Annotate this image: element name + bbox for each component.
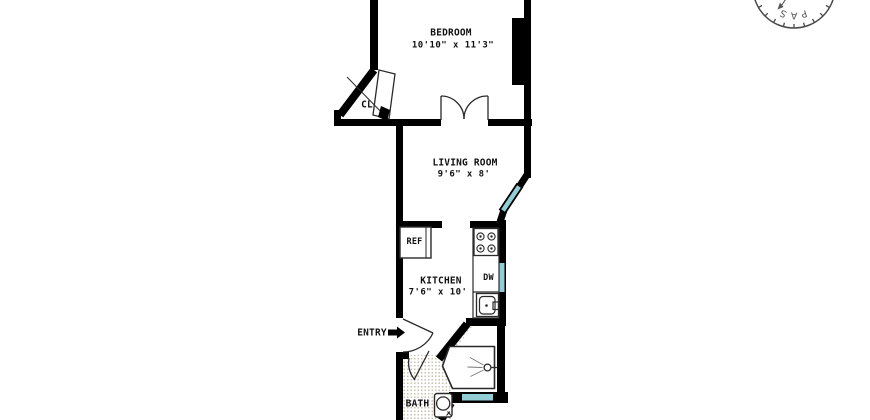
- floor-plan-drawing: PASS: [0, 0, 870, 420]
- room-dims-bedroom: 10'10" x 11'3": [412, 42, 494, 51]
- bath-door-icon: [409, 351, 429, 380]
- room-label-living-room: LIVING ROOM: [432, 158, 497, 168]
- room-label-bath: BATH: [406, 399, 430, 409]
- entry-label: ENTRY: [357, 328, 387, 338]
- room-label-closet: CL: [361, 100, 373, 110]
- french-doors-icon: [441, 96, 488, 120]
- compass-icon: PASS: [0, 0, 836, 29]
- room-dims-living-room: 9'6" x 8': [438, 171, 491, 180]
- room-label-bedroom: BEDROOM: [430, 28, 471, 38]
- floor-plan: PASS BEDROOM 10'10" x 11'3" LIVING ROOM …: [0, 0, 870, 420]
- toilet-icon: [435, 394, 453, 418]
- entry-door-icon: [403, 319, 433, 352]
- room-dims-kitchen: 7'6" x 10': [409, 289, 468, 298]
- shower-icon: [443, 347, 498, 389]
- kitchen-window: [500, 263, 505, 292]
- stove-icon: [474, 229, 498, 256]
- refrigerator-label: REF: [407, 237, 423, 246]
- room-label-kitchen: KITCHEN: [420, 276, 461, 286]
- svg-text:PASS: PASS: [0, 0, 808, 21]
- bedroom-window: [512, 18, 531, 85]
- dishwasher-label: DW: [483, 273, 494, 282]
- bath-window: [462, 394, 493, 401]
- compass-text: PASS: [0, 0, 808, 21]
- entry-arrow-icon: [388, 327, 405, 339]
- windows: [462, 18, 531, 401]
- living-room-window: [503, 187, 519, 211]
